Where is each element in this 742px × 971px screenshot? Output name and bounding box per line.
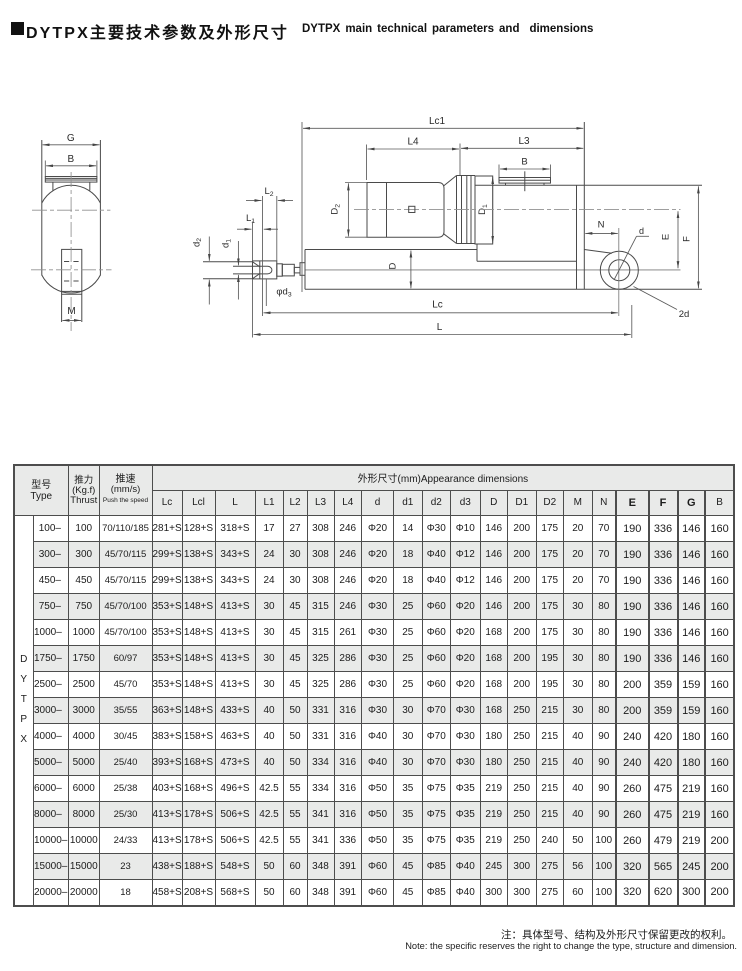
svg-text:D: D <box>388 262 399 269</box>
svg-text:d1: d1 <box>221 239 233 248</box>
svg-text:d: d <box>639 226 644 236</box>
svg-text:Lc1: Lc1 <box>429 116 446 127</box>
svg-text:d2: d2 <box>191 238 203 247</box>
svg-text:F: F <box>682 236 693 242</box>
svg-text:D2: D2 <box>330 204 342 215</box>
svg-text:L4: L4 <box>407 137 419 148</box>
svg-text:L1: L1 <box>246 213 255 225</box>
svg-text:Lc: Lc <box>432 300 443 311</box>
svg-text:B: B <box>67 154 74 165</box>
svg-text:B: B <box>521 157 527 168</box>
svg-text:E: E <box>661 234 672 240</box>
svg-text:L: L <box>437 322 443 333</box>
svg-text:L2: L2 <box>264 186 273 198</box>
svg-text:φd3: φd3 <box>276 287 291 299</box>
svg-text:N: N <box>598 220 605 231</box>
svg-text:2d: 2d <box>679 309 690 320</box>
svg-text:G: G <box>67 133 75 144</box>
svg-text:L3: L3 <box>518 136 530 147</box>
svg-text:M: M <box>67 306 75 317</box>
